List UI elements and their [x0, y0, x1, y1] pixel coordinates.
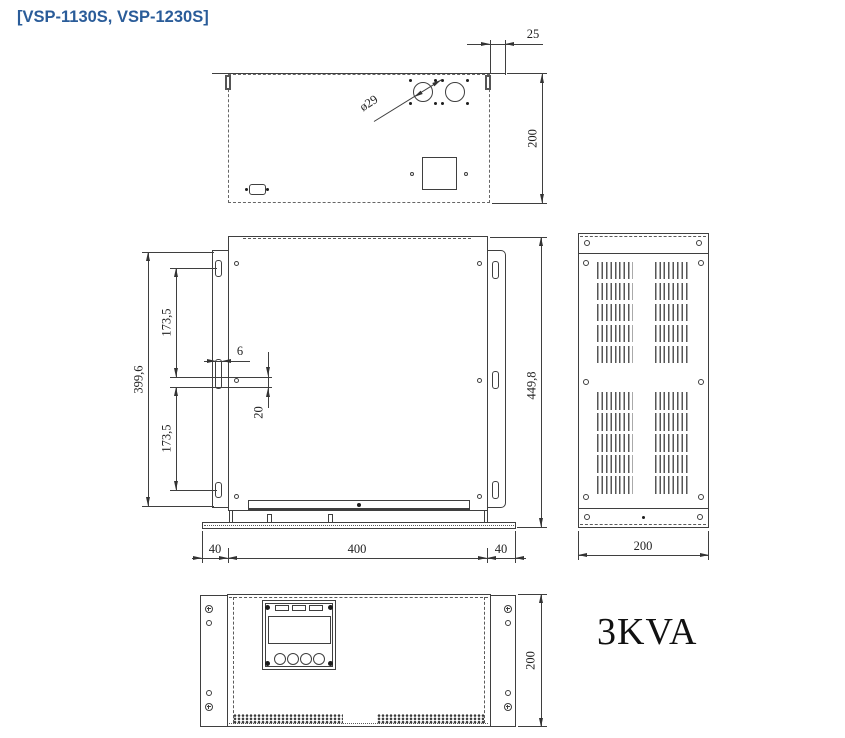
screw [696, 240, 702, 246]
corner-tab [225, 75, 231, 90]
base-tab [328, 514, 333, 522]
dim-arrow [700, 553, 709, 557]
dim-arrow [515, 556, 524, 560]
dim-arrow [146, 252, 150, 261]
dim-line [578, 555, 709, 556]
dim-arrow [540, 194, 544, 203]
corner-hole [234, 494, 239, 499]
dim-arrow [505, 42, 514, 46]
page-title: [VSP-1130S, VSP-1230S] [17, 8, 209, 27]
dim-label-slot-height: 20 [252, 391, 267, 435]
mount-slot [492, 371, 499, 389]
dim-label-pitch-upper: 173,5 [160, 301, 175, 345]
dim-label-overhang: 25 [518, 27, 548, 42]
dim-arrow [539, 594, 543, 603]
panel-button [313, 653, 325, 665]
screw [584, 240, 590, 246]
screw-hole [434, 102, 437, 105]
screw-hole [409, 79, 412, 82]
screw [698, 494, 704, 500]
screw-hole [464, 172, 468, 176]
indicator-slot [309, 605, 323, 611]
hidden-edge [484, 597, 485, 723]
extension-line [142, 252, 214, 253]
screw [583, 260, 589, 266]
hidden-edge [580, 524, 706, 525]
dim-arrow [539, 718, 543, 727]
dim-line [176, 387, 177, 490]
base-flange-hatch [204, 525, 514, 526]
screw [505, 690, 511, 696]
hidden-edge [580, 236, 706, 237]
hidden-edge [243, 238, 471, 239]
dim-arrow [174, 481, 178, 490]
dim-arrow [174, 387, 178, 396]
dim-arrow [481, 42, 490, 46]
base-tab [267, 514, 272, 522]
panel-seam [578, 253, 709, 254]
screw [698, 379, 704, 385]
dim-label-total-height: 449,8 [525, 364, 540, 408]
panel-screw [265, 605, 270, 610]
dim-arrow [146, 497, 150, 506]
dim-arrow [540, 74, 544, 83]
dim-arrow [539, 237, 543, 246]
dim-arrow [174, 368, 178, 377]
rail-center-hole [357, 503, 361, 507]
bend-line [484, 510, 485, 522]
dim-line [268, 352, 269, 408]
dim-line [192, 558, 526, 559]
screw [697, 514, 703, 520]
screw [698, 260, 704, 266]
panel-button [287, 653, 299, 665]
panel-screw [265, 661, 270, 666]
screw-hole [410, 172, 414, 176]
panel-screw [328, 605, 333, 610]
dim-label-side-depth: 200 [623, 539, 663, 554]
bend-line [229, 510, 230, 522]
indicator-slot [275, 605, 289, 611]
corner-hole [477, 378, 482, 383]
hidden-edge [233, 597, 234, 723]
cable-gland-hole [445, 82, 465, 102]
dim-label-top-depth: 200 [526, 117, 541, 161]
dim-label-base-right: 40 [486, 542, 516, 557]
screw-hole [409, 102, 412, 105]
screw [206, 620, 212, 626]
vent-grille [233, 714, 343, 724]
screw-hole [441, 102, 444, 105]
dim-label-base-left: 40 [200, 542, 230, 557]
dim-label-base-center: 400 [332, 542, 382, 557]
screw-hole [466, 79, 469, 82]
extension-line [170, 490, 217, 491]
screw [583, 494, 589, 500]
extension-line [517, 527, 547, 528]
corner-tab [485, 75, 491, 90]
extension-line [492, 203, 547, 204]
center-hole [642, 516, 645, 519]
panel-screw [328, 661, 333, 666]
panel-seam [578, 508, 709, 509]
screw [583, 379, 589, 385]
screw [505, 620, 511, 626]
phillips-screw [504, 605, 512, 613]
dim-label-pitch-lower: 173,5 [160, 417, 175, 461]
dim-label-face-height: 200 [524, 639, 539, 683]
dim-arrow [174, 268, 178, 277]
phillips-screw [205, 703, 213, 711]
vent-grille [377, 714, 484, 724]
corner-hole [477, 261, 482, 266]
screw-hole [466, 102, 469, 105]
screw [584, 514, 590, 520]
panel-button [274, 653, 286, 665]
terminal-cutout [422, 157, 457, 190]
dsub-screw [245, 188, 248, 191]
hidden-edge [229, 597, 488, 598]
dsub-connector [249, 184, 266, 195]
dim-arrow [207, 359, 216, 363]
drawing-sheet: [VSP-1130S, VSP-1230S] ø29 25 [0, 0, 845, 738]
mount-slot [492, 261, 499, 279]
dim-arrow [539, 518, 543, 527]
extension-line [518, 594, 547, 595]
corner-hole [234, 378, 239, 383]
dim-line [176, 268, 177, 377]
dim-label-mount-height: 399,6 [132, 358, 147, 402]
vent-grid-lower [597, 392, 688, 494]
dim-arrow [222, 359, 231, 363]
extension-line [142, 506, 214, 507]
dim-arrow [578, 553, 587, 557]
dim-line [541, 237, 542, 527]
phillips-screw [205, 605, 213, 613]
extension-line [170, 387, 272, 388]
screw [206, 690, 212, 696]
extension-line [170, 377, 272, 378]
display-window [268, 616, 331, 644]
dsub-screw [266, 188, 269, 191]
bend-line [232, 510, 233, 522]
dim-line [542, 74, 543, 203]
capacity-label: 3KVA [597, 610, 697, 654]
indicator-slot [292, 605, 306, 611]
mount-slot [215, 359, 222, 389]
extension-line [518, 726, 547, 727]
bend-line [487, 510, 488, 522]
dim-line [541, 594, 542, 727]
mount-slot [492, 481, 499, 499]
dim-label-slot-width: 6 [228, 344, 252, 359]
corner-hole [477, 494, 482, 499]
dim-line [148, 252, 149, 506]
corner-hole [234, 261, 239, 266]
vent-grid-upper [597, 262, 688, 363]
dim-arrow [266, 367, 270, 376]
phillips-screw [504, 703, 512, 711]
panel-button [300, 653, 312, 665]
